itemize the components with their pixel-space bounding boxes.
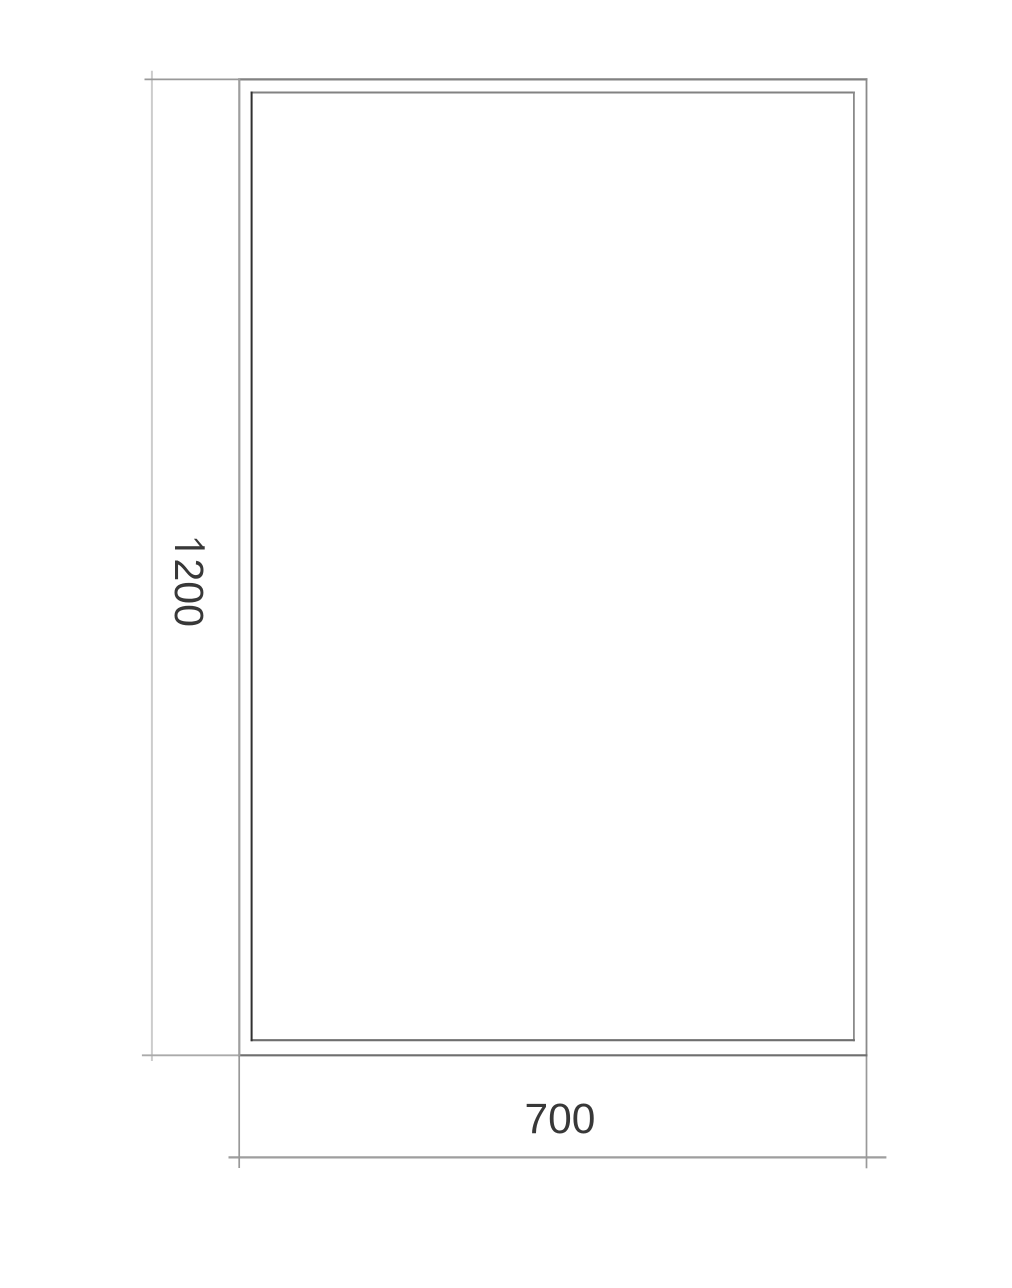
svg-text:200: 200 bbox=[166, 559, 212, 627]
svg-text:700: 700 bbox=[525, 1096, 596, 1143]
